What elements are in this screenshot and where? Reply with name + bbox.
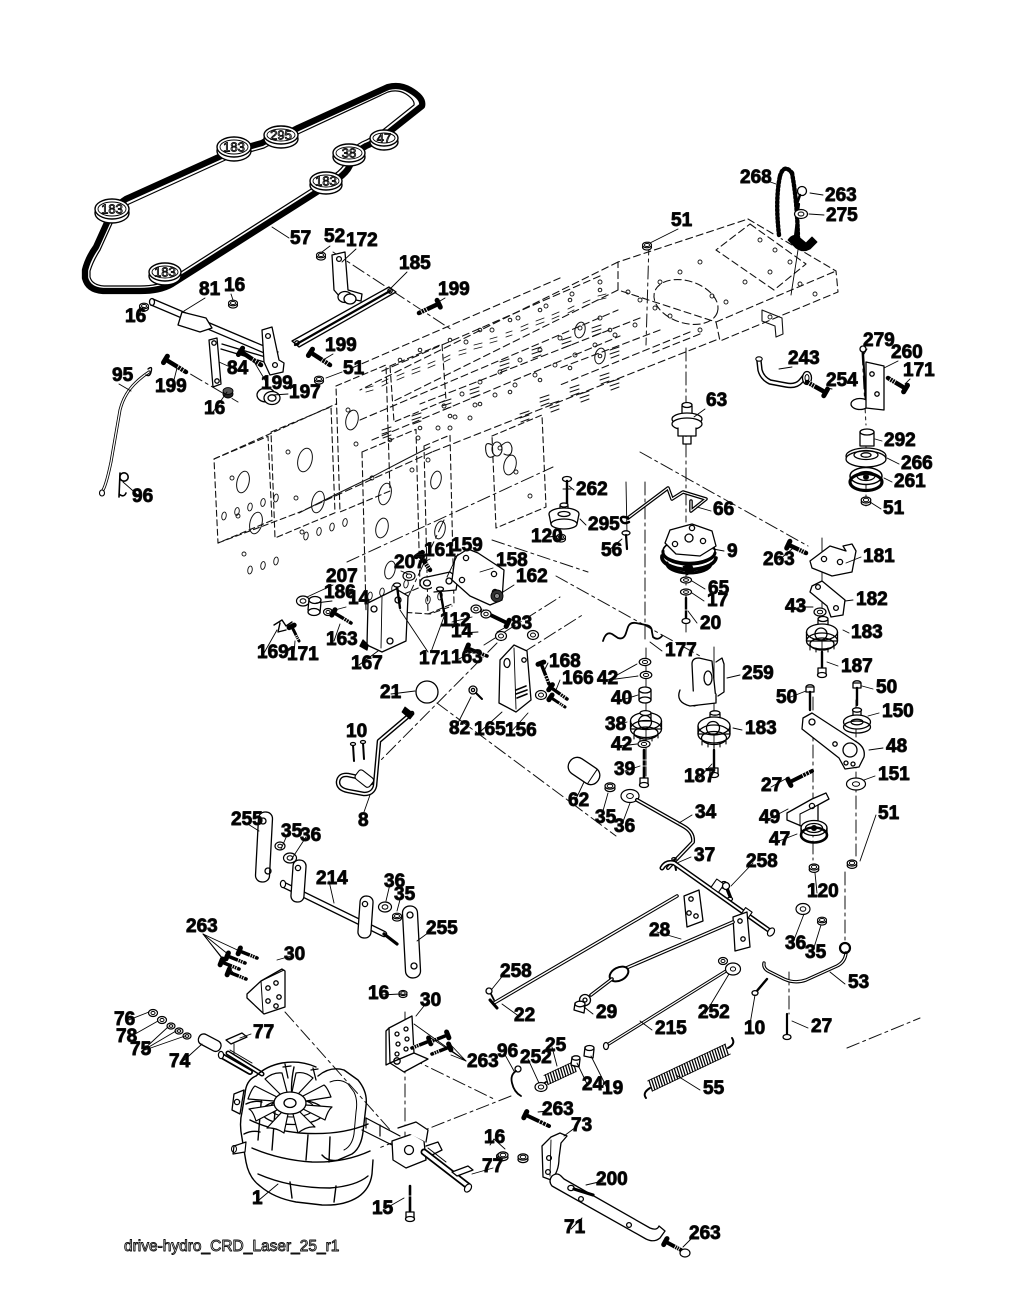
svg-text:8: 8 xyxy=(358,810,369,831)
svg-text:120: 120 xyxy=(531,526,563,547)
svg-text:40: 40 xyxy=(611,688,632,709)
svg-text:49: 49 xyxy=(759,807,780,828)
svg-text:53: 53 xyxy=(848,972,869,993)
svg-text:171: 171 xyxy=(419,648,451,669)
svg-text:199: 199 xyxy=(325,335,357,356)
svg-text:35: 35 xyxy=(394,884,416,905)
svg-text:200: 200 xyxy=(596,1169,628,1190)
svg-text:263: 263 xyxy=(467,1051,499,1072)
svg-text:258: 258 xyxy=(500,961,532,982)
svg-text:42: 42 xyxy=(597,668,618,689)
svg-text:38: 38 xyxy=(342,146,356,161)
svg-text:24: 24 xyxy=(582,1074,604,1095)
svg-text:262: 262 xyxy=(576,479,608,500)
svg-text:56: 56 xyxy=(601,540,622,561)
svg-text:51: 51 xyxy=(883,498,905,519)
svg-text:63: 63 xyxy=(706,390,727,411)
svg-text:77: 77 xyxy=(253,1022,274,1043)
svg-text:34: 34 xyxy=(695,802,717,823)
svg-text:183: 183 xyxy=(851,622,883,643)
svg-text:120: 120 xyxy=(807,881,839,902)
svg-text:171: 171 xyxy=(287,644,319,665)
svg-text:254: 254 xyxy=(826,370,858,391)
svg-text:243: 243 xyxy=(788,348,820,369)
svg-text:71: 71 xyxy=(564,1217,586,1238)
svg-text:35: 35 xyxy=(805,942,827,963)
svg-text:159: 159 xyxy=(451,535,483,556)
svg-text:14: 14 xyxy=(451,621,473,642)
svg-text:295: 295 xyxy=(588,514,620,535)
svg-text:182: 182 xyxy=(856,589,888,610)
svg-text:95: 95 xyxy=(112,365,134,386)
svg-text:207: 207 xyxy=(394,552,426,573)
svg-text:279: 279 xyxy=(863,330,895,351)
svg-text:199: 199 xyxy=(155,376,187,397)
svg-text:16: 16 xyxy=(484,1127,505,1148)
svg-text:10: 10 xyxy=(744,1018,765,1039)
svg-text:150: 150 xyxy=(882,701,914,722)
svg-text:17: 17 xyxy=(707,590,728,611)
svg-text:29: 29 xyxy=(596,1002,617,1023)
svg-text:165: 165 xyxy=(474,719,506,740)
svg-text:163: 163 xyxy=(326,629,358,650)
svg-text:51: 51 xyxy=(671,210,693,231)
svg-text:10: 10 xyxy=(346,721,367,742)
svg-text:275: 275 xyxy=(826,205,858,226)
svg-text:51: 51 xyxy=(878,803,900,824)
svg-text:16: 16 xyxy=(125,306,146,327)
svg-text:169: 169 xyxy=(257,642,289,663)
svg-text:183: 183 xyxy=(223,140,245,155)
svg-text:9: 9 xyxy=(727,541,738,562)
svg-text:163: 163 xyxy=(451,647,483,668)
svg-text:295: 295 xyxy=(270,128,292,143)
svg-text:199: 199 xyxy=(261,373,293,394)
svg-text:73: 73 xyxy=(571,1115,592,1136)
svg-text:263: 263 xyxy=(825,185,857,206)
svg-text:36: 36 xyxy=(614,816,635,837)
svg-text:81: 81 xyxy=(199,279,221,300)
svg-text:187: 187 xyxy=(841,656,873,677)
svg-text:96: 96 xyxy=(132,486,153,507)
svg-text:21: 21 xyxy=(380,682,402,703)
svg-text:82: 82 xyxy=(449,718,470,739)
svg-text:66: 66 xyxy=(713,499,734,520)
svg-text:43: 43 xyxy=(785,596,806,617)
svg-text:263: 263 xyxy=(542,1099,574,1120)
svg-text:36: 36 xyxy=(300,825,321,846)
svg-text:37: 37 xyxy=(694,845,715,866)
svg-text:38: 38 xyxy=(605,714,626,735)
svg-text:15: 15 xyxy=(372,1198,394,1219)
svg-text:16: 16 xyxy=(224,275,245,296)
svg-text:255: 255 xyxy=(426,918,458,939)
svg-text:48: 48 xyxy=(886,736,907,757)
svg-text:55: 55 xyxy=(703,1078,725,1099)
svg-text:183: 183 xyxy=(154,265,176,280)
svg-text:263: 263 xyxy=(763,549,795,570)
svg-text:199: 199 xyxy=(438,279,470,300)
svg-text:258: 258 xyxy=(746,851,778,872)
svg-text:47: 47 xyxy=(769,829,790,850)
svg-text:52: 52 xyxy=(324,226,345,247)
svg-text:28: 28 xyxy=(649,920,670,941)
svg-text:27: 27 xyxy=(811,1016,832,1037)
svg-text:183: 183 xyxy=(101,202,123,217)
svg-text:19: 19 xyxy=(602,1078,623,1099)
svg-text:255: 255 xyxy=(231,809,263,830)
svg-text:14: 14 xyxy=(348,588,370,609)
svg-text:50: 50 xyxy=(876,677,897,698)
svg-text:47: 47 xyxy=(377,131,391,146)
svg-text:drive-hydro_CRD_Laser_25_r1: drive-hydro_CRD_Laser_25_r1 xyxy=(124,1238,339,1255)
svg-text:30: 30 xyxy=(420,990,441,1011)
svg-text:172: 172 xyxy=(346,230,378,251)
svg-text:252: 252 xyxy=(698,1002,730,1023)
svg-text:51: 51 xyxy=(343,358,365,379)
svg-text:268: 268 xyxy=(740,167,772,188)
svg-text:77: 77 xyxy=(482,1156,503,1177)
svg-text:25: 25 xyxy=(545,1035,567,1056)
svg-text:50: 50 xyxy=(776,687,797,708)
svg-text:292: 292 xyxy=(884,430,916,451)
svg-text:185: 185 xyxy=(399,253,431,274)
svg-text:183: 183 xyxy=(745,718,777,739)
svg-text:16: 16 xyxy=(204,398,225,419)
svg-text:166: 166 xyxy=(562,668,594,689)
svg-text:177: 177 xyxy=(665,640,697,661)
svg-text:162: 162 xyxy=(516,566,548,587)
svg-text:27: 27 xyxy=(761,775,782,796)
svg-text:75: 75 xyxy=(130,1039,152,1060)
svg-text:57: 57 xyxy=(290,228,311,249)
svg-text:215: 215 xyxy=(655,1018,687,1039)
svg-text:16: 16 xyxy=(368,983,389,1004)
svg-text:167: 167 xyxy=(351,653,383,674)
svg-text:151: 151 xyxy=(878,764,910,785)
svg-text:263: 263 xyxy=(689,1223,721,1244)
svg-text:83: 83 xyxy=(511,613,532,634)
svg-text:171: 171 xyxy=(903,360,935,381)
svg-text:30: 30 xyxy=(284,944,305,965)
svg-text:181: 181 xyxy=(863,546,895,567)
svg-text:39: 39 xyxy=(614,759,635,780)
svg-text:261: 261 xyxy=(894,471,926,492)
svg-text:156: 156 xyxy=(505,720,537,741)
svg-text:20: 20 xyxy=(700,613,721,634)
svg-text:84: 84 xyxy=(227,358,249,379)
svg-text:259: 259 xyxy=(742,663,774,684)
svg-text:263: 263 xyxy=(186,916,218,937)
svg-text:214: 214 xyxy=(316,868,348,889)
svg-text:183: 183 xyxy=(315,174,337,189)
svg-text:74: 74 xyxy=(169,1051,191,1072)
svg-text:197: 197 xyxy=(289,382,321,403)
